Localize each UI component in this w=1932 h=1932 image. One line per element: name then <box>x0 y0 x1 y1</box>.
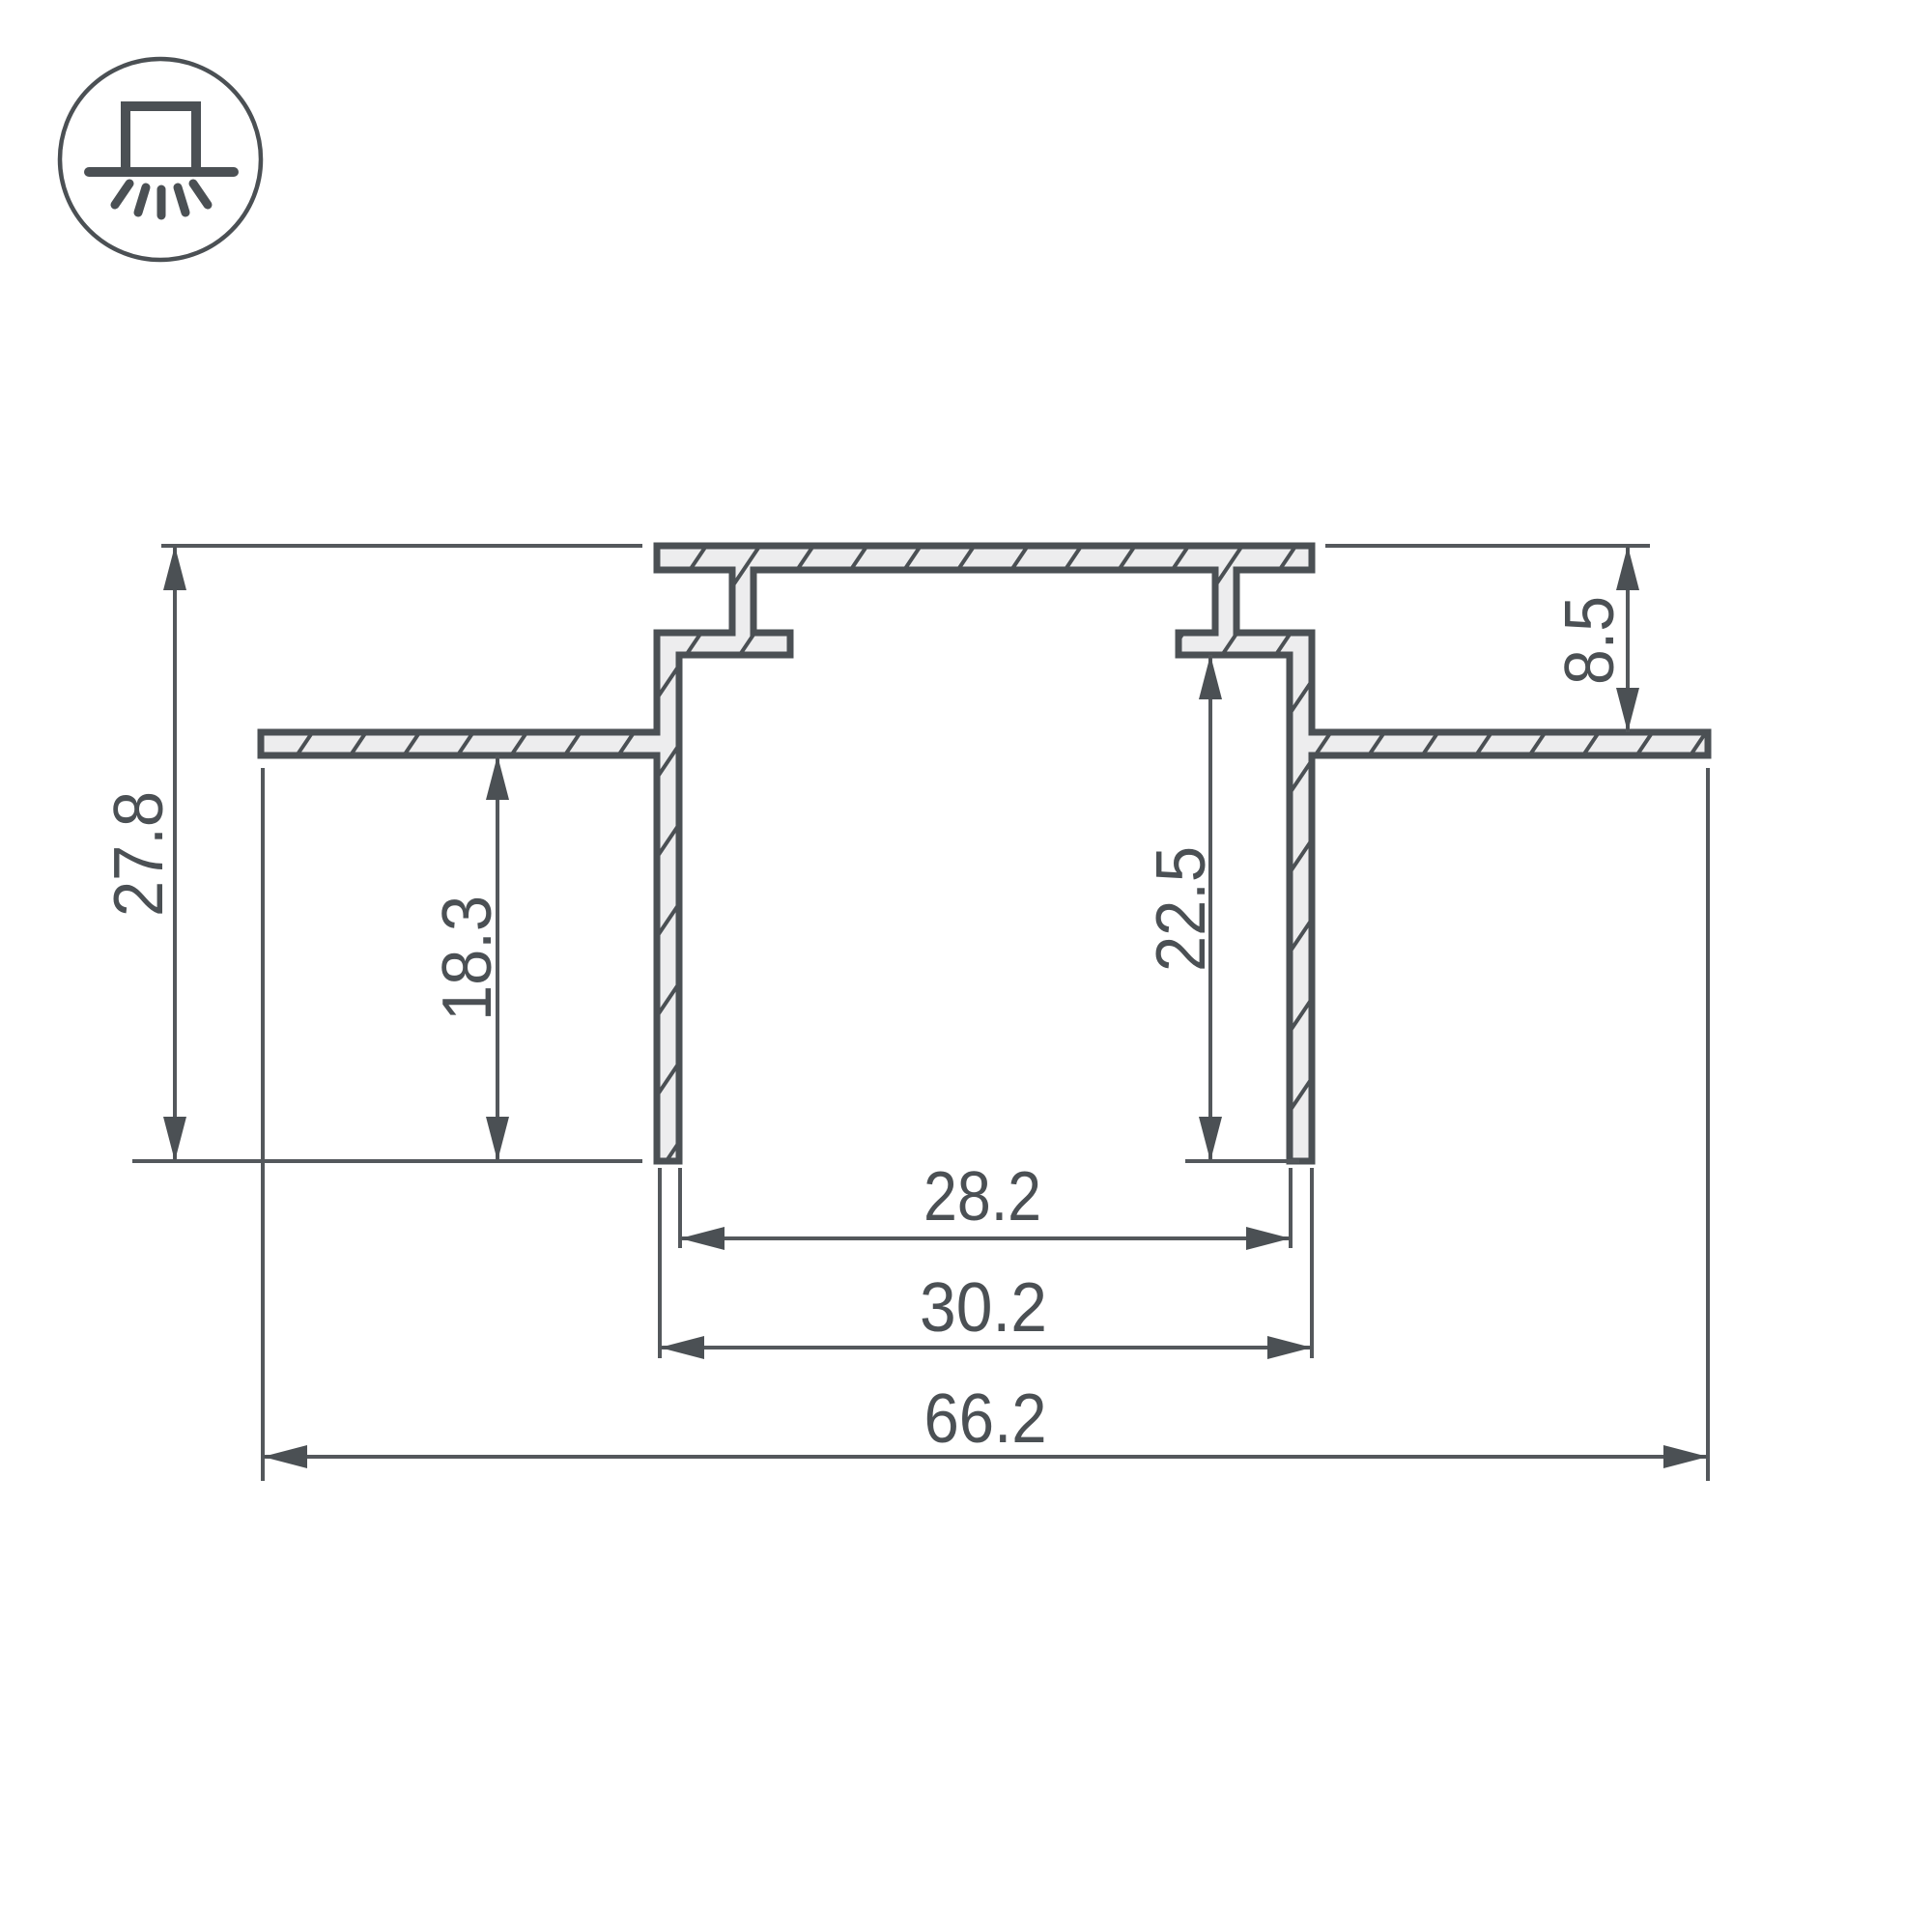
profile-cross-section <box>261 546 1708 1161</box>
arrowhead-up <box>1616 546 1639 590</box>
recessed-mount-light-icon <box>60 59 261 260</box>
arrowhead-left <box>660 1336 704 1359</box>
arrowhead-right <box>1246 1227 1291 1250</box>
arrowhead-left <box>263 1445 307 1468</box>
icon-light-rays <box>115 184 208 215</box>
arrowhead-down <box>486 1117 509 1161</box>
icon-circle <box>60 59 261 260</box>
drawing-canvas: 27.8 18.3 8.5 22.5 28.2 3 <box>0 0 1932 1932</box>
arrowhead-up <box>486 755 509 800</box>
arrowhead-left <box>680 1227 724 1250</box>
dimension-label-outer-width: 30.2 <box>920 1269 1047 1347</box>
dimension-label-cavity-depth: 22.5 <box>1143 846 1220 972</box>
icon-fixture-box <box>126 106 196 172</box>
dimension-flange-recess: 8.5 <box>1325 546 1650 732</box>
dimension-label-overall-height: 27.8 <box>100 791 178 917</box>
arrowhead-up <box>1199 655 1222 699</box>
dimension-overall-height: 27.8 <box>100 546 642 1161</box>
arrowhead-down <box>1616 688 1639 732</box>
dimension-inner-width: 28.2 <box>680 1158 1291 1250</box>
arrowhead-up <box>163 546 186 590</box>
dimension-label-overall-width: 66.2 <box>924 1380 1047 1458</box>
dimension-label-left-inner-depth: 18.3 <box>429 895 506 1021</box>
arrowhead-down <box>163 1117 186 1161</box>
arrowhead-right <box>1267 1336 1312 1359</box>
arrowhead-down <box>1199 1117 1222 1161</box>
dimension-label-inner-width: 28.2 <box>923 1158 1041 1236</box>
dimension-label-flange-recess: 8.5 <box>1551 596 1629 685</box>
technical-drawing: 27.8 18.3 8.5 22.5 28.2 3 <box>0 0 1932 1932</box>
dimension-overall-width: 66.2 <box>263 768 1708 1481</box>
dimension-left-inner-depth: 18.3 <box>429 755 509 1161</box>
arrowhead-right <box>1663 1445 1708 1468</box>
dimension-cavity-depth: 22.5 <box>1143 655 1299 1161</box>
